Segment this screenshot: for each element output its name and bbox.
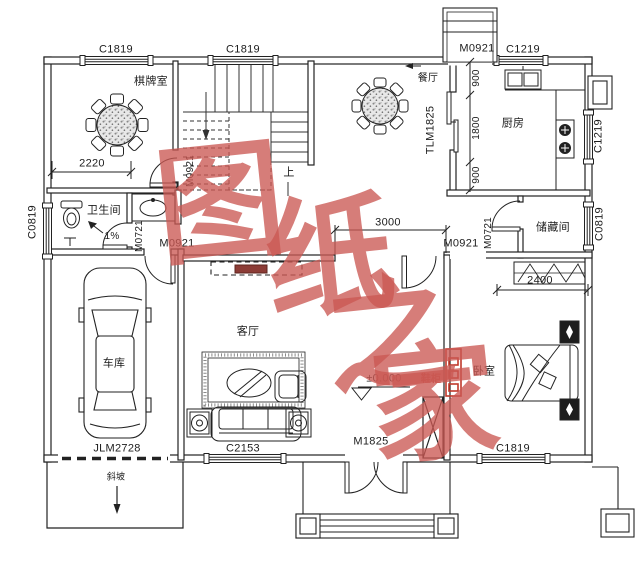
dim-label-1800: 1800 <box>472 116 482 139</box>
entry-porch-steps <box>296 462 458 538</box>
window-c0819-left <box>43 203 53 259</box>
room-label-bath: 卫生间 <box>87 206 121 217</box>
dim-label-3000: 3000 <box>375 218 401 229</box>
room-label-storage: 储藏间 <box>536 223 570 234</box>
door-label-tlm1825: TLM1825 <box>426 106 437 155</box>
dim-label-900-bottom: 900 <box>472 166 482 184</box>
kitchen-flue <box>588 76 612 109</box>
window-c0819-right <box>584 202 594 250</box>
window-c1219-top <box>494 56 548 66</box>
window-label-c0819-left: C0819 <box>28 205 39 239</box>
side-column <box>592 467 634 537</box>
tv-cabinet <box>211 262 302 275</box>
note-label-grade: 1% <box>104 232 119 242</box>
door-storage <box>492 201 520 231</box>
door-entry-double <box>345 462 407 493</box>
note-label-up: 上 <box>283 168 294 179</box>
room-label-bedroom: 卧室 <box>473 367 496 378</box>
door-sliding-tlm1825 <box>447 92 458 152</box>
door-label-m0721-left: M0721 <box>135 220 145 252</box>
door-label-m0921-top: M0921 <box>459 44 494 55</box>
window-label-c1819-bottom: C1819 <box>496 444 530 455</box>
window-label-c1819-topleft: C1819 <box>99 45 133 56</box>
living-room-furniture <box>187 352 311 441</box>
floor-plan: C1819 C1819 M0921 C1219 棋牌室 餐厅 厨房 TLM182… <box>0 0 640 564</box>
room-label-garage: 车库 <box>103 359 126 370</box>
room-label-living: 客厅 <box>237 327 260 338</box>
room-label-kitchen: 厨房 <box>502 119 525 130</box>
door-label-jlm2728: JLM2728 <box>93 444 140 455</box>
door-bedroom <box>402 256 436 288</box>
window-c1819-stairs <box>208 56 278 66</box>
chess-room-table <box>86 94 148 156</box>
room-label-chess: 棋牌室 <box>134 77 168 88</box>
note-label-level: ±0.000 <box>366 374 401 385</box>
window-label-c0819-right: C0819 <box>595 207 606 241</box>
door-label-m1825: M1825 <box>353 437 388 448</box>
room-label-dining: 餐厅 <box>418 74 439 84</box>
door-garage <box>145 255 175 284</box>
garage-car <box>79 268 151 438</box>
door-label-m0721-storage: M0721 <box>484 217 494 249</box>
window-label-c1219-right: C1219 <box>594 119 605 153</box>
dining-table <box>352 78 408 134</box>
door-label-m0921-stairs: M0921 <box>186 155 196 187</box>
structural-column <box>423 397 443 458</box>
window-c1819-bottom <box>477 454 550 464</box>
window-c2153-bottom <box>204 454 286 464</box>
window-label-c1819-stairs: C1819 <box>226 45 260 56</box>
door-label-m0921-garage: M0921 <box>159 239 194 250</box>
level-mark <box>352 387 410 400</box>
dim-label-900-top: 900 <box>472 69 482 87</box>
window-label-c1219-top: C1219 <box>506 45 540 56</box>
note-label-shoe-cabinet: 鞋柜 <box>421 375 442 385</box>
dim-label-2400: 2400 <box>527 276 553 287</box>
window-label-c2153: C2153 <box>226 444 260 455</box>
door-chess-room <box>150 158 177 187</box>
note-label-slope: 斜坡 <box>107 473 126 482</box>
door-label-m0921-bedroom: M0921 <box>443 239 478 250</box>
dim-label-2220: 2220 <box>79 159 105 170</box>
window-c1819-topleft <box>80 56 153 66</box>
